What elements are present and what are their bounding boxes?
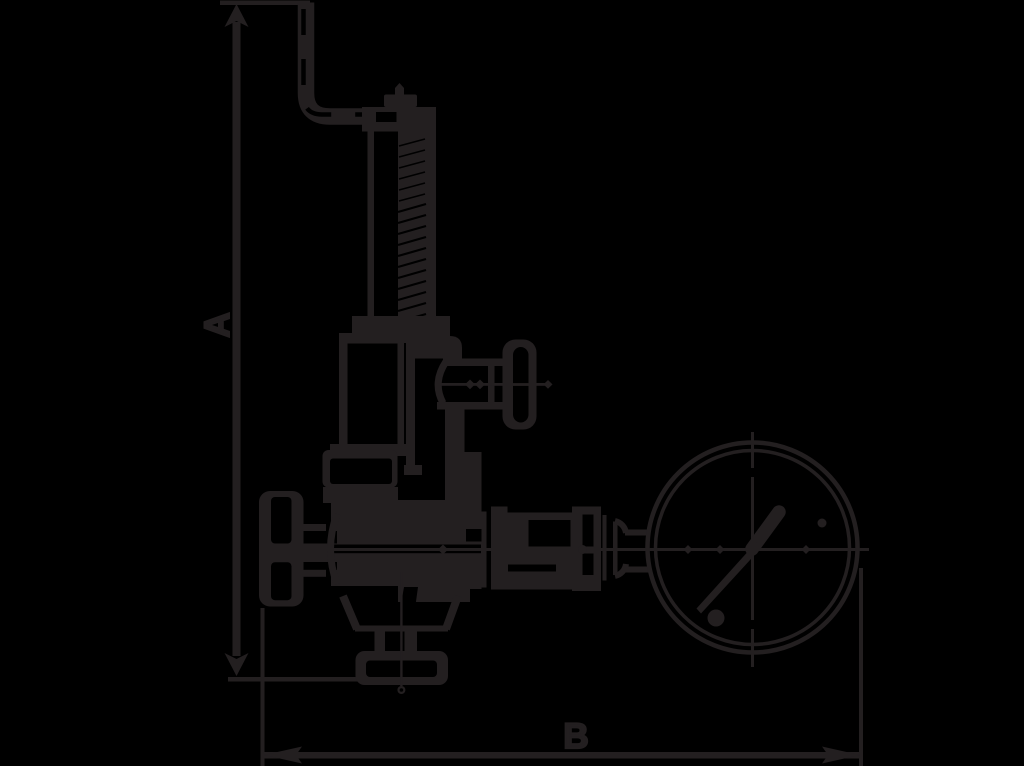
svg-text:A: A (198, 312, 237, 337)
svg-text:B: B (563, 717, 588, 756)
